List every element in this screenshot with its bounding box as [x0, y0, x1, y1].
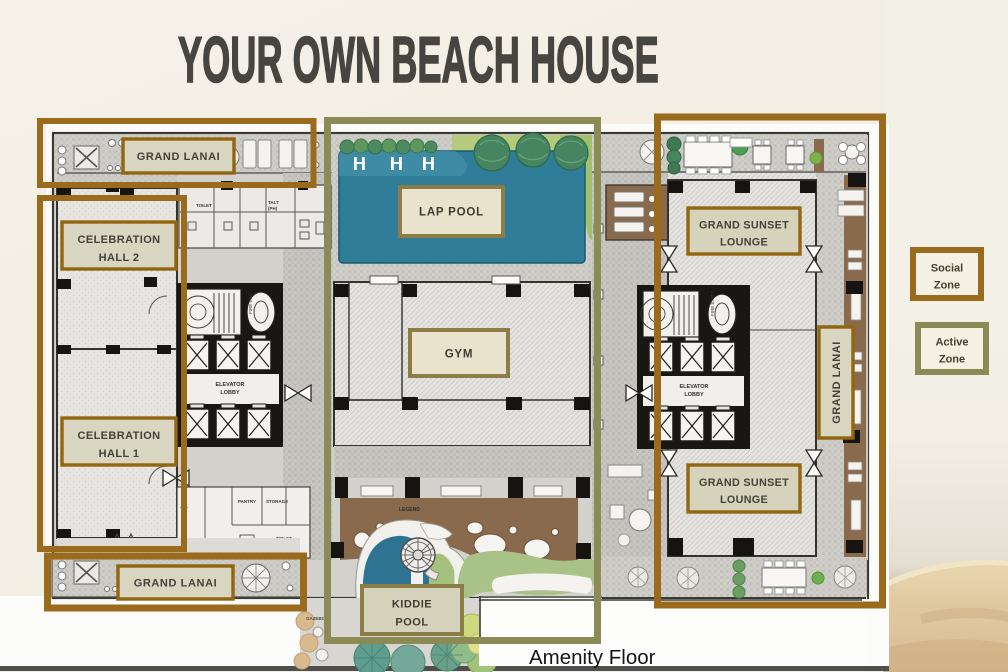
svg-text:Zone: Zone — [934, 280, 960, 292]
svg-text:(PH): (PH) — [268, 206, 278, 211]
svg-text:GRAND LANAI: GRAND LANAI — [134, 578, 218, 590]
svg-text:TOILET: TOILET — [196, 203, 212, 208]
svg-text:FIRE EXIT 2: FIRE EXIT 2 — [710, 290, 715, 316]
svg-text:GRAND LANAI: GRAND LANAI — [137, 151, 221, 163]
svg-text:GRAND SUNSET: GRAND SUNSET — [699, 477, 789, 489]
svg-text:ELEVATOR: ELEVATOR — [679, 384, 708, 390]
svg-text:LAP POOL: LAP POOL — [419, 207, 484, 219]
svg-text:GRAND LANAI: GRAND LANAI — [831, 341, 843, 424]
svg-text:STORAGE: STORAGE — [266, 499, 288, 504]
svg-text:Active: Active — [935, 337, 968, 349]
svg-text:HALL 2: HALL 2 — [99, 252, 140, 264]
svg-text:LEGEND: LEGEND — [399, 507, 420, 513]
svg-text:CELEBRATION: CELEBRATION — [77, 430, 160, 442]
svg-text:LOUNGE: LOUNGE — [720, 237, 768, 249]
svg-text:Social: Social — [931, 263, 963, 275]
svg-text:KIDDIE: KIDDIE — [392, 599, 432, 611]
svg-text:GAZEBO: GAZEBO — [306, 616, 326, 621]
svg-text:FIRE EXIT: FIRE EXIT — [248, 292, 253, 314]
svg-text:GYM: GYM — [445, 349, 474, 361]
svg-text:Zone: Zone — [939, 354, 965, 366]
svg-text:TALT: TALT — [268, 200, 279, 205]
svg-text:ELEVATOR: ELEVATOR — [215, 382, 244, 388]
svg-text:CELEBRATION: CELEBRATION — [77, 234, 160, 246]
svg-text:Amenity Floor: Amenity Floor — [529, 646, 656, 669]
svg-text:PANTRY: PANTRY — [238, 499, 256, 504]
svg-text:LOUNGE: LOUNGE — [720, 494, 768, 506]
svg-text:LOBBY: LOBBY — [220, 390, 240, 396]
svg-text:GRAND SUNSET: GRAND SUNSET — [699, 220, 789, 232]
svg-text:HALL 1: HALL 1 — [99, 448, 140, 460]
svg-text:LOBBY: LOBBY — [684, 392, 704, 398]
svg-text:POOL: POOL — [395, 617, 428, 629]
svg-text:YOUR OWN BEACH HOUSE: YOUR OWN BEACH HOUSE — [178, 24, 659, 97]
